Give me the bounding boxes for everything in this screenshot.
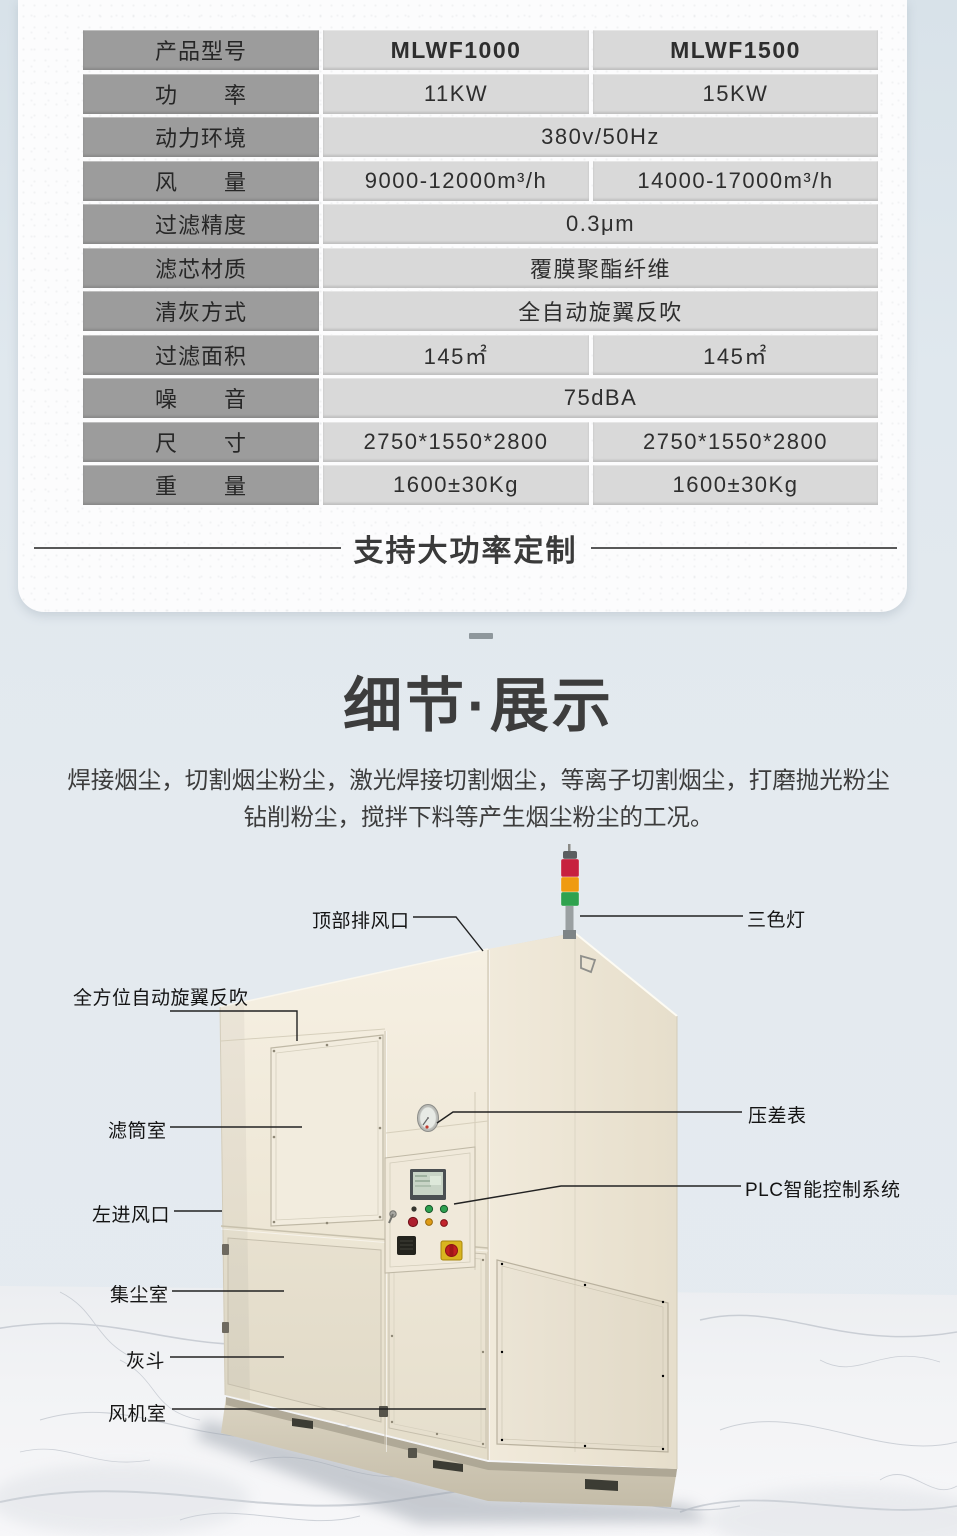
spec-label: 清灰方式 — [83, 291, 319, 331]
spec-value: 1600±30Kg — [323, 465, 589, 505]
custom-power-banner: 支持大功率定制 — [34, 528, 897, 568]
spec-label: 功 率 — [83, 74, 319, 114]
table-row: 风 量 9000-12000m³/h 14000-17000m³/h — [83, 161, 878, 201]
label-fan-room: 风机室 — [108, 1399, 167, 1426]
label-tricolor-light: 三色灯 — [747, 905, 806, 932]
tower-light-orange — [561, 877, 579, 892]
table-row: 过滤面积 145㎡ 145㎡ — [83, 335, 878, 375]
table-row: 滤芯材质 覆膜聚酯纤维 — [83, 248, 878, 288]
spec-label: 噪 音 — [83, 378, 319, 418]
vent-grille — [397, 1236, 416, 1255]
spec-value: 覆膜聚酯纤维 — [323, 248, 878, 288]
table-row: 尺 寸 2750*1550*2800 2750*1550*2800 — [83, 422, 878, 462]
green-button — [425, 1205, 432, 1212]
red-stop-button — [408, 1217, 417, 1226]
label-top-vent: 顶部排风口 — [312, 906, 410, 933]
spec-value: 75dBA — [323, 378, 878, 418]
fan-room-door — [389, 1247, 486, 1448]
label-plc: PLC智能控制系统 — [745, 1175, 900, 1202]
spec-value: 全自动旋翼反吹 — [323, 291, 878, 331]
spec-card: 产品型号 MLWF1000 MLWF1500 功 率 11KW 15KW 动力环… — [18, 0, 907, 612]
tower-light-base — [563, 930, 576, 939]
tower-light-pole — [566, 906, 574, 934]
base-vent-slot — [585, 1479, 618, 1491]
label-dust-room: 集尘室 — [110, 1280, 169, 1307]
spec-value: 145㎡ — [593, 335, 878, 375]
spec-value: 2750*1550*2800 — [593, 422, 878, 462]
description-line: 焊接烟尘，切割烟尘粉尘，激光焊接切割烟尘，等离子切割烟尘，打磨抛光粉尘 — [0, 762, 957, 799]
spec-value: 380v/50Hz — [323, 117, 878, 157]
table-row: 噪 音 75dBA — [83, 378, 878, 418]
door-hinge — [222, 1322, 229, 1333]
red-button — [441, 1220, 448, 1227]
orange-button — [426, 1219, 433, 1226]
spec-value: 2750*1550*2800 — [323, 422, 589, 462]
spec-label: 重 量 — [83, 465, 319, 505]
banner-line-right — [591, 547, 898, 549]
banner-line-left — [34, 547, 341, 549]
tower-light-cap — [563, 851, 577, 859]
door-latch — [379, 1406, 388, 1417]
green-button — [440, 1205, 447, 1212]
spec-value: 15KW — [593, 74, 878, 114]
tower-light — [561, 844, 579, 939]
tower-light-red — [561, 859, 579, 877]
label-pressure-gauge: 压差表 — [748, 1101, 807, 1128]
table-row: 清灰方式 全自动旋翼反吹 — [83, 291, 878, 331]
spec-label: 过滤精度 — [83, 204, 319, 244]
spec-label: 风 量 — [83, 161, 319, 201]
cabinet-body — [220, 933, 677, 1469]
spec-value: 14000-17000m³/h — [593, 161, 878, 201]
plc-control-panel — [385, 1147, 475, 1273]
spec-table: 产品型号 MLWF1000 MLWF1500 功 率 11KW 15KW 动力环… — [83, 30, 878, 505]
banner-text: 支持大功率定制 — [354, 526, 578, 570]
pressure-gauge — [418, 1105, 439, 1132]
label-ash-hopper: 灰斗 — [126, 1346, 165, 1373]
spec-value: 9000-12000m³/h — [323, 161, 589, 201]
label-filter-room: 滤筒室 — [108, 1116, 167, 1143]
table-row: 过滤精度 0.3μm — [83, 204, 878, 244]
description-line: 钻削粉尘，搅拌下料等产生烟尘粉尘的工况。 — [0, 799, 957, 836]
black-button — [411, 1206, 416, 1211]
spec-value: 145㎡ — [323, 335, 589, 375]
spec-label: 尺 寸 — [83, 422, 319, 462]
spec-label: 滤芯材质 — [83, 248, 319, 288]
leader-top-vent — [413, 917, 483, 951]
product-detail-page: 产品型号 MLWF1000 MLWF1500 功 率 11KW 15KW 动力环… — [0, 0, 957, 1536]
section-dash — [469, 633, 493, 639]
emergency-rotary-switch — [441, 1241, 462, 1260]
spec-value: MLWF1500 — [593, 30, 878, 70]
section-description: 焊接烟尘，切割烟尘粉尘，激光焊接切割烟尘，等离子切割烟尘，打磨抛光粉尘 钻削粉尘… — [0, 762, 957, 836]
spec-label: 动力环境 — [83, 117, 319, 157]
filter-room-door — [271, 1035, 383, 1226]
spec-label: 产品型号 — [83, 30, 319, 70]
spec-value: MLWF1000 — [323, 30, 589, 70]
door-latch — [408, 1448, 417, 1458]
table-row: 动力环境 380v/50Hz — [83, 117, 878, 157]
spec-value: 0.3μm — [323, 204, 878, 244]
hmi-screen — [410, 1169, 446, 1200]
spec-value: 1600±30Kg — [593, 465, 878, 505]
label-rotary-blowback: 全方位自动旋翼反吹 — [73, 983, 249, 1010]
door-hinge — [222, 1244, 229, 1255]
table-row: 产品型号 MLWF1000 MLWF1500 — [83, 30, 878, 70]
tower-light-green — [561, 892, 579, 906]
table-row: 重 量 1600±30Kg 1600±30Kg — [83, 465, 878, 505]
spec-label: 过滤面积 — [83, 335, 319, 375]
table-row: 功 率 11KW 15KW — [83, 74, 878, 114]
label-left-inlet: 左进风口 — [92, 1200, 170, 1227]
spec-value: 11KW — [323, 74, 589, 114]
section-title: 细节·展示 — [0, 658, 957, 743]
